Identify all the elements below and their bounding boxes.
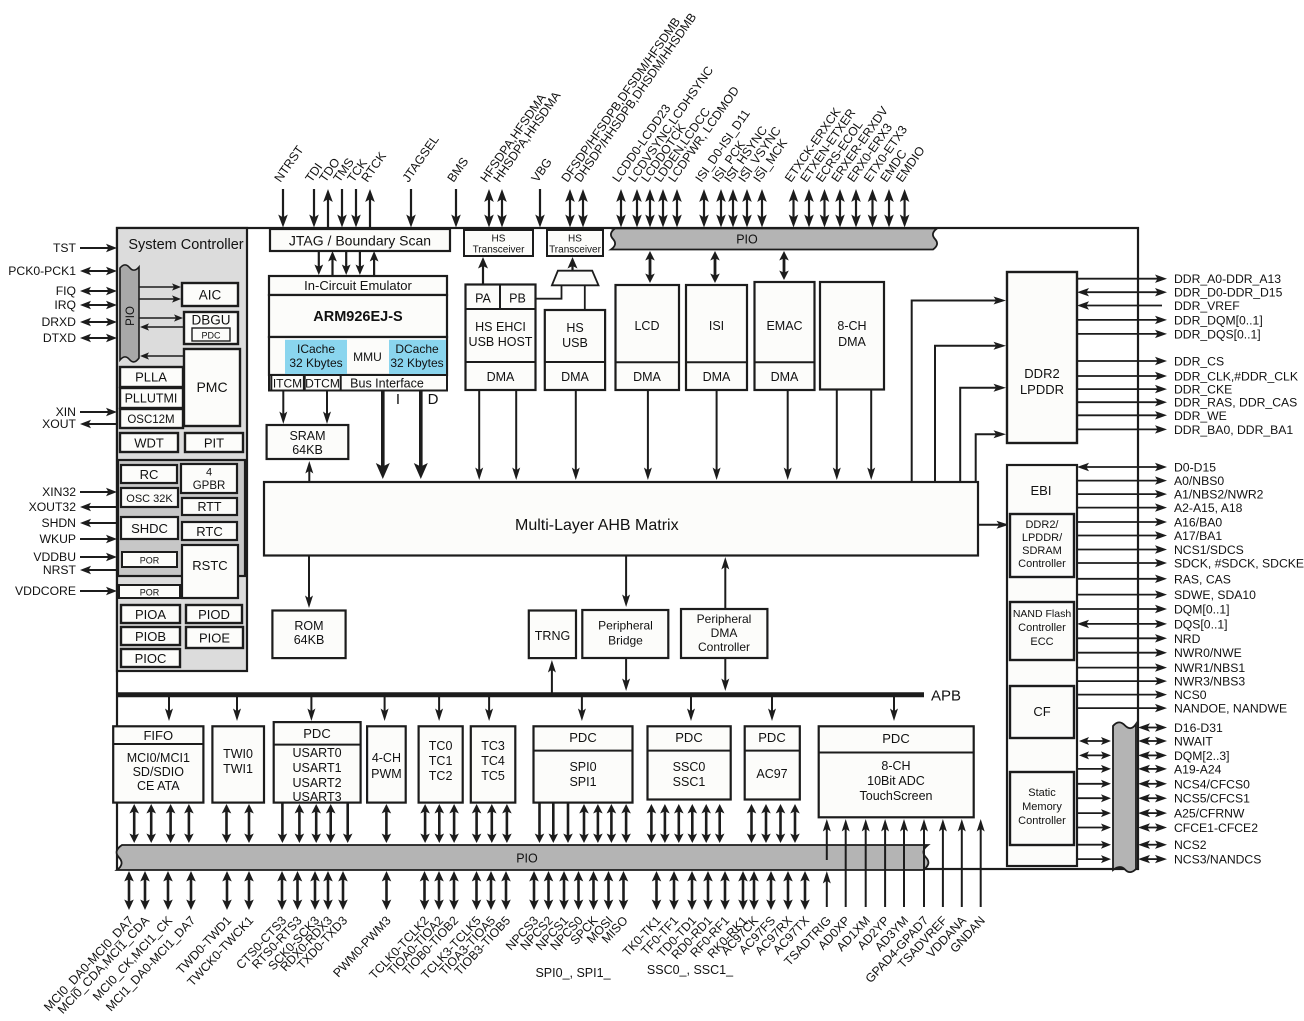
svg-text:Peripheral: Peripheral <box>697 612 752 626</box>
svg-text:SDRAM: SDRAM <box>1022 545 1062 557</box>
svg-text:SPI1: SPI1 <box>569 775 596 789</box>
svg-text:AIC: AIC <box>199 288 222 303</box>
svg-text:FIQ: FIQ <box>56 284 76 298</box>
svg-text:NCS1/SDCS: NCS1/SDCS <box>1174 543 1244 557</box>
svg-text:USART0: USART0 <box>292 746 341 760</box>
svg-text:TWI1: TWI1 <box>223 762 253 776</box>
svg-text:8-CH: 8-CH <box>837 319 866 333</box>
svg-text:SRAM: SRAM <box>289 429 325 443</box>
svg-text:PIO: PIO <box>125 306 137 326</box>
svg-text:TC4: TC4 <box>481 754 505 768</box>
svg-text:PIOE: PIOE <box>199 631 230 646</box>
svg-text:DDR_A0-DDR_A13: DDR_A0-DDR_A13 <box>1174 272 1281 286</box>
svg-text:USB HOST: USB HOST <box>469 335 533 349</box>
svg-text:NCS0: NCS0 <box>1174 688 1207 702</box>
svg-text:HS: HS <box>568 234 582 245</box>
svg-text:CF: CF <box>1033 704 1050 719</box>
svg-text:APB: APB <box>931 688 961 705</box>
svg-text:RAS, CAS: RAS, CAS <box>1174 572 1231 586</box>
svg-text:USART3: USART3 <box>292 790 341 804</box>
svg-text:USB: USB <box>562 336 588 350</box>
svg-text:PIOD: PIOD <box>198 607 230 622</box>
svg-text:SHDN: SHDN <box>41 516 76 530</box>
svg-text:DDR_CS: DDR_CS <box>1174 355 1224 369</box>
svg-text:POR: POR <box>140 588 160 598</box>
svg-text:DQM[0..1]: DQM[0..1] <box>1174 603 1230 617</box>
svg-text:Multi-Layer AHB Matrix: Multi-Layer AHB Matrix <box>515 517 679 534</box>
svg-text:NAND Flash: NAND Flash <box>1013 608 1072 620</box>
svg-text:DRXD: DRXD <box>41 315 76 329</box>
svg-text:PDC: PDC <box>303 726 330 741</box>
svg-text:64KB: 64KB <box>294 633 325 647</box>
svg-text:RSTC: RSTC <box>192 558 227 573</box>
svg-text:XOUT: XOUT <box>42 417 76 431</box>
svg-text:PIOB: PIOB <box>135 629 166 644</box>
svg-text:10Bit ADC: 10Bit ADC <box>867 774 925 788</box>
svg-text:64KB: 64KB <box>292 443 323 457</box>
svg-text:PIO: PIO <box>736 233 758 247</box>
svg-text:RTT: RTT <box>197 500 221 514</box>
svg-text:DMA: DMA <box>561 370 589 384</box>
svg-text:GPBR: GPBR <box>193 480 226 492</box>
svg-text:MCI0/MCI1: MCI0/MCI1 <box>127 751 190 765</box>
svg-text:Memory: Memory <box>1022 801 1062 813</box>
svg-text:8-CH: 8-CH <box>881 759 910 773</box>
svg-text:DTCM: DTCM <box>305 377 340 391</box>
svg-text:DDR2: DDR2 <box>1024 366 1059 381</box>
svg-text:CE ATA: CE ATA <box>137 779 180 793</box>
svg-text:D: D <box>428 391 439 408</box>
svg-text:XIN32: XIN32 <box>42 485 76 499</box>
svg-text:ARM926EJ-S: ARM926EJ-S <box>313 309 403 325</box>
svg-text:PDC: PDC <box>882 731 909 746</box>
svg-text:DDR_CLK,#DDR_CLK: DDR_CLK,#DDR_CLK <box>1174 370 1298 384</box>
svg-text:TC1: TC1 <box>429 754 453 768</box>
svg-text:TC5: TC5 <box>481 769 505 783</box>
svg-text:SSC1: SSC1 <box>673 775 706 789</box>
svg-text:A25/CFRNW: A25/CFRNW <box>1174 807 1245 821</box>
svg-text:NWAIT: NWAIT <box>1174 735 1213 749</box>
svg-text:Controller: Controller <box>698 640 750 654</box>
svg-text:PMC: PMC <box>196 379 227 395</box>
svg-text:Peripheral: Peripheral <box>598 619 653 633</box>
svg-text:PB: PB <box>509 292 526 306</box>
svg-text:POR: POR <box>140 556 160 566</box>
svg-text:DCache: DCache <box>395 342 439 356</box>
svg-text:NCS3/NANDCS: NCS3/NANDCS <box>1174 853 1261 867</box>
svg-text:A2-A15, A18: A2-A15, A18 <box>1174 501 1243 515</box>
svg-text:NCS5/CFCS1: NCS5/CFCS1 <box>1174 792 1250 806</box>
svg-text:EBI: EBI <box>1031 483 1052 498</box>
svg-text:Transceiver: Transceiver <box>473 245 526 256</box>
svg-text:DDR_WE: DDR_WE <box>1174 409 1227 423</box>
svg-text:NANDOE, NANDWE: NANDOE, NANDWE <box>1174 702 1287 716</box>
svg-text:LPDDR/: LPDDR/ <box>1022 532 1063 544</box>
svg-text:SSC0: SSC0 <box>673 760 706 774</box>
svg-text:4: 4 <box>206 467 212 479</box>
svg-text:NWR1/NBS1: NWR1/NBS1 <box>1174 661 1245 675</box>
svg-text:DMA: DMA <box>771 370 799 384</box>
svg-text:SPI0: SPI0 <box>569 760 596 774</box>
svg-text:ITCM: ITCM <box>273 377 302 391</box>
svg-text:HS: HS <box>492 234 506 245</box>
svg-text:DQM[2..3]: DQM[2..3] <box>1174 749 1230 763</box>
svg-text:TouchScreen: TouchScreen <box>860 789 933 803</box>
svg-text:DDR_VREF: DDR_VREF <box>1174 299 1240 313</box>
svg-text:SDWE, SDA10: SDWE, SDA10 <box>1174 588 1256 602</box>
svg-text:SD/SDIO: SD/SDIO <box>133 765 185 779</box>
svg-text:NCS2: NCS2 <box>1174 838 1207 852</box>
svg-text:DDR_BA0, DDR_BA1: DDR_BA0, DDR_BA1 <box>1174 423 1293 437</box>
svg-text:DDR_CKE: DDR_CKE <box>1174 383 1232 397</box>
svg-text:A17/BA1: A17/BA1 <box>1174 529 1222 543</box>
svg-text:CFCE1-CFCE2: CFCE1-CFCE2 <box>1174 821 1258 835</box>
svg-text:NWR0/NWE: NWR0/NWE <box>1174 646 1242 660</box>
svg-text:ECC: ECC <box>1030 636 1053 648</box>
svg-text:32 Kbytes: 32 Kbytes <box>289 356 342 370</box>
svg-text:TC0: TC0 <box>429 739 453 753</box>
svg-text:TC3: TC3 <box>481 739 505 753</box>
svg-text:SDCK, #SDCK, SDCKE: SDCK, #SDCK, SDCKE <box>1174 557 1304 571</box>
svg-text:OSC 32K: OSC 32K <box>126 493 173 505</box>
svg-text:System Controller: System Controller <box>128 237 243 253</box>
svg-text:USART2: USART2 <box>292 776 341 790</box>
svg-text:A16/BA0: A16/BA0 <box>1174 516 1222 530</box>
svg-text:PIT: PIT <box>204 436 224 451</box>
svg-text:D16-D31: D16-D31 <box>1174 721 1223 735</box>
svg-text:XOUT32: XOUT32 <box>29 500 77 514</box>
svg-text:USART1: USART1 <box>292 761 341 775</box>
svg-text:RC: RC <box>140 467 159 482</box>
svg-text:DDR_RAS, DDR_CAS: DDR_RAS, DDR_CAS <box>1174 396 1297 410</box>
svg-text:A1/NBS2/NWR2: A1/NBS2/NWR2 <box>1174 488 1264 502</box>
svg-text:Transceiver: Transceiver <box>549 245 602 256</box>
svg-text:VDDCORE: VDDCORE <box>15 584 76 598</box>
svg-text:DDR_DQM[0..1]: DDR_DQM[0..1] <box>1174 313 1263 327</box>
svg-text:A19-A24: A19-A24 <box>1174 762 1222 776</box>
svg-text:PDC: PDC <box>758 730 785 745</box>
svg-text:AC97: AC97 <box>756 767 787 781</box>
svg-text:ISI: ISI <box>709 319 724 333</box>
svg-text:TC2: TC2 <box>429 769 453 783</box>
svg-text:I: I <box>396 391 400 408</box>
svg-text:DDR_D0-DDR_D15: DDR_D0-DDR_D15 <box>1174 286 1283 300</box>
svg-text:PDC: PDC <box>569 730 596 745</box>
svg-text:SSC0_, SSC1_: SSC0_, SSC1_ <box>647 963 734 977</box>
svg-text:LCD: LCD <box>634 319 659 333</box>
svg-text:OSC12M: OSC12M <box>127 414 174 426</box>
svg-text:NWR3/NBS3: NWR3/NBS3 <box>1174 675 1245 689</box>
svg-text:PWM: PWM <box>371 767 402 781</box>
svg-text:A0/NBS0: A0/NBS0 <box>1174 474 1224 488</box>
svg-text:WDT: WDT <box>134 436 164 451</box>
svg-text:HS: HS <box>566 321 583 335</box>
svg-text:TRNG: TRNG <box>535 629 570 643</box>
svg-text:NRD: NRD <box>1174 632 1201 646</box>
svg-text:DBGU: DBGU <box>191 313 230 328</box>
svg-text:DMA: DMA <box>633 370 661 384</box>
svg-text:SPI0_, SPI1_: SPI0_, SPI1_ <box>535 966 611 980</box>
svg-text:PIOA: PIOA <box>135 607 166 622</box>
svg-text:4-CH: 4-CH <box>372 751 401 765</box>
svg-text:TWI0: TWI0 <box>223 747 253 761</box>
svg-text:DDR_DQS[0..1]: DDR_DQS[0..1] <box>1174 327 1261 341</box>
svg-text:SHDC: SHDC <box>131 521 168 536</box>
svg-text:WKUP: WKUP <box>39 532 76 546</box>
svg-text:PDC: PDC <box>201 331 221 341</box>
svg-text:FIFO: FIFO <box>143 728 173 743</box>
svg-text:JTAG / Boundary Scan: JTAG / Boundary Scan <box>289 233 431 249</box>
svg-text:Bridge: Bridge <box>608 634 643 648</box>
svg-text:PIO: PIO <box>516 852 538 866</box>
svg-text:EMAC: EMAC <box>766 319 802 333</box>
svg-text:DMA: DMA <box>703 370 731 384</box>
svg-text:NCS4/CFCS0: NCS4/CFCS0 <box>1174 777 1250 791</box>
svg-text:DTXD: DTXD <box>43 331 76 345</box>
svg-text:NRST: NRST <box>43 563 77 577</box>
svg-text:PDC: PDC <box>675 730 702 745</box>
svg-text:DMA: DMA <box>838 335 866 349</box>
svg-text:PCK0-PCK1: PCK0-PCK1 <box>8 264 76 278</box>
svg-text:DMA: DMA <box>711 626 738 640</box>
svg-text:PLLA: PLLA <box>135 370 167 385</box>
svg-text:DMA: DMA <box>487 370 515 384</box>
svg-text:Static: Static <box>1028 787 1056 799</box>
svg-text:Controller: Controller <box>1018 815 1066 827</box>
svg-text:PIOC: PIOC <box>135 651 167 666</box>
svg-text:HS EHCI: HS EHCI <box>475 320 526 334</box>
svg-text:MMU: MMU <box>353 350 382 364</box>
svg-text:DQS[0..1]: DQS[0..1] <box>1174 617 1228 631</box>
svg-text:Controller: Controller <box>1018 622 1066 634</box>
svg-text:ICache: ICache <box>297 342 335 356</box>
svg-text:IRQ: IRQ <box>54 298 76 312</box>
svg-text:In-Circuit Emulator: In-Circuit Emulator <box>304 278 412 293</box>
svg-text:D0-D15: D0-D15 <box>1174 461 1216 475</box>
svg-text:LPDDR: LPDDR <box>1020 382 1064 397</box>
svg-text:TST: TST <box>53 241 77 255</box>
svg-text:DDR2/: DDR2/ <box>1025 519 1059 531</box>
svg-text:PA: PA <box>475 292 491 306</box>
svg-text:ROM: ROM <box>294 619 323 633</box>
svg-text:32 Kbytes: 32 Kbytes <box>390 356 443 370</box>
svg-text:Controller: Controller <box>1018 558 1066 570</box>
svg-text:PLLUTMI: PLLUTMI <box>125 392 178 406</box>
svg-text:Bus Interface: Bus Interface <box>350 377 424 391</box>
svg-text:RTC: RTC <box>196 524 222 539</box>
svg-text:VDDBU: VDDBU <box>33 550 76 564</box>
